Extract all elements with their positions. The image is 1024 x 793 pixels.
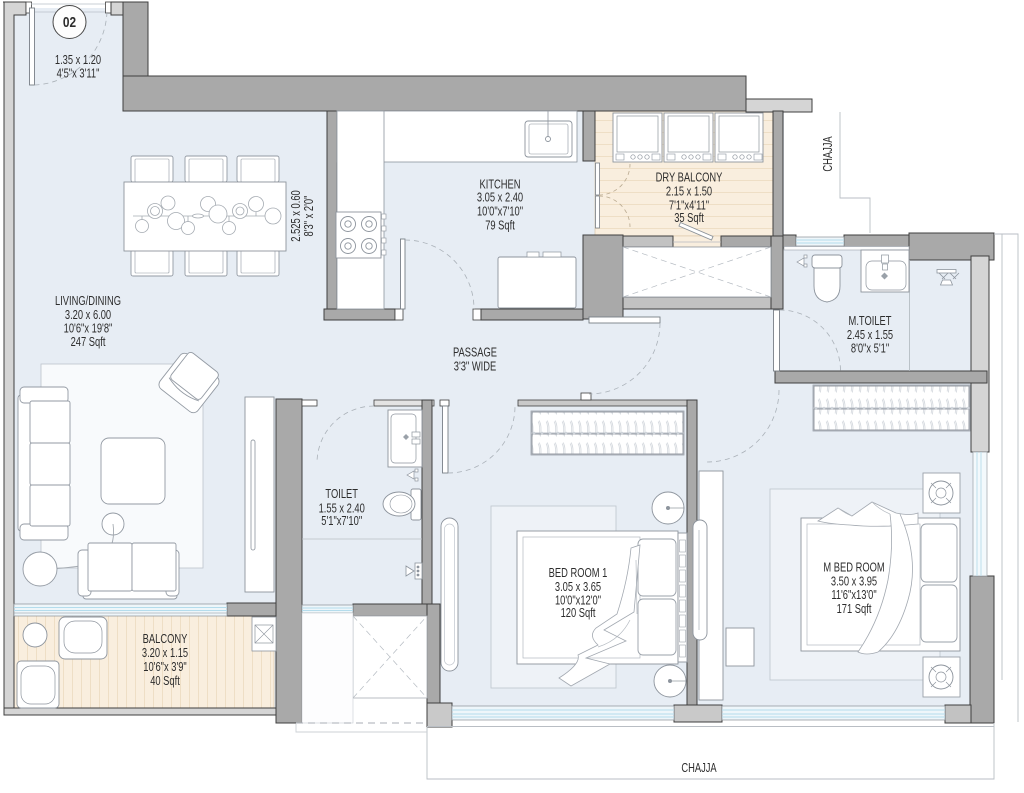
svg-text:10'6"x 3'9": 10'6"x 3'9" bbox=[143, 661, 186, 675]
svg-text:1.35 x 1.20: 1.35 x 1.20 bbox=[55, 54, 101, 68]
svg-text:3.20 x 6.00: 3.20 x 6.00 bbox=[65, 309, 111, 323]
svg-text:35 Sqft: 35 Sqft bbox=[674, 212, 704, 226]
svg-text:3.05 x 3.65: 3.05 x 3.65 bbox=[555, 581, 601, 595]
svg-text:8'3" x 2'0": 8'3" x 2'0" bbox=[303, 196, 317, 237]
svg-text:PASSAGE: PASSAGE bbox=[453, 346, 497, 360]
svg-text:3.05 x 2.40: 3.05 x 2.40 bbox=[477, 191, 523, 205]
svg-text:BED ROOM 1: BED ROOM 1 bbox=[549, 567, 608, 581]
svg-text:1.55 x 2.40: 1.55 x 2.40 bbox=[319, 502, 365, 516]
svg-text:4'5"x 3'11": 4'5"x 3'11" bbox=[57, 67, 100, 81]
svg-text:02: 02 bbox=[63, 14, 76, 30]
svg-text:10'0"x7'10": 10'0"x7'10" bbox=[477, 205, 523, 219]
svg-text:CHAJJA: CHAJJA bbox=[681, 762, 717, 776]
svg-text:10'6"x 19'8": 10'6"x 19'8" bbox=[64, 322, 113, 336]
svg-text:LIVING/DINING: LIVING/DINING bbox=[55, 295, 121, 309]
svg-text:BALCONY: BALCONY bbox=[143, 633, 188, 647]
svg-text:40 Sqft: 40 Sqft bbox=[150, 675, 180, 689]
svg-text:11'6"x13'0": 11'6"x13'0" bbox=[831, 589, 876, 603]
svg-text:2.45 x 1.55: 2.45 x 1.55 bbox=[847, 329, 893, 343]
svg-text:5'1"x7'10": 5'1"x7'10" bbox=[321, 515, 362, 529]
svg-text:2.525 x 0.60: 2.525 x 0.60 bbox=[290, 190, 304, 241]
svg-text:3'3" WIDE: 3'3" WIDE bbox=[454, 360, 497, 374]
svg-text:TOILET: TOILET bbox=[325, 487, 358, 501]
svg-text:171 Sqft: 171 Sqft bbox=[837, 603, 873, 617]
svg-text:120 Sqft: 120 Sqft bbox=[561, 607, 597, 621]
svg-text:247 Sqft: 247 Sqft bbox=[71, 336, 107, 350]
svg-text:CHAJJA: CHAJJA bbox=[822, 136, 836, 172]
svg-text:3.20 x 1.15: 3.20 x 1.15 bbox=[142, 647, 188, 661]
svg-text:M.TOILET: M.TOILET bbox=[849, 315, 892, 329]
svg-text:2.15 x 1.50: 2.15 x 1.50 bbox=[666, 185, 712, 199]
svg-text:M BED ROOM: M BED ROOM bbox=[823, 561, 884, 575]
svg-text:3.50 x 3.95: 3.50 x 3.95 bbox=[831, 575, 877, 589]
svg-text:8'0"x 5'1": 8'0"x 5'1" bbox=[851, 342, 889, 356]
svg-text:79 Sqft: 79 Sqft bbox=[485, 219, 515, 233]
svg-text:DRY BALCONY: DRY BALCONY bbox=[656, 171, 723, 185]
